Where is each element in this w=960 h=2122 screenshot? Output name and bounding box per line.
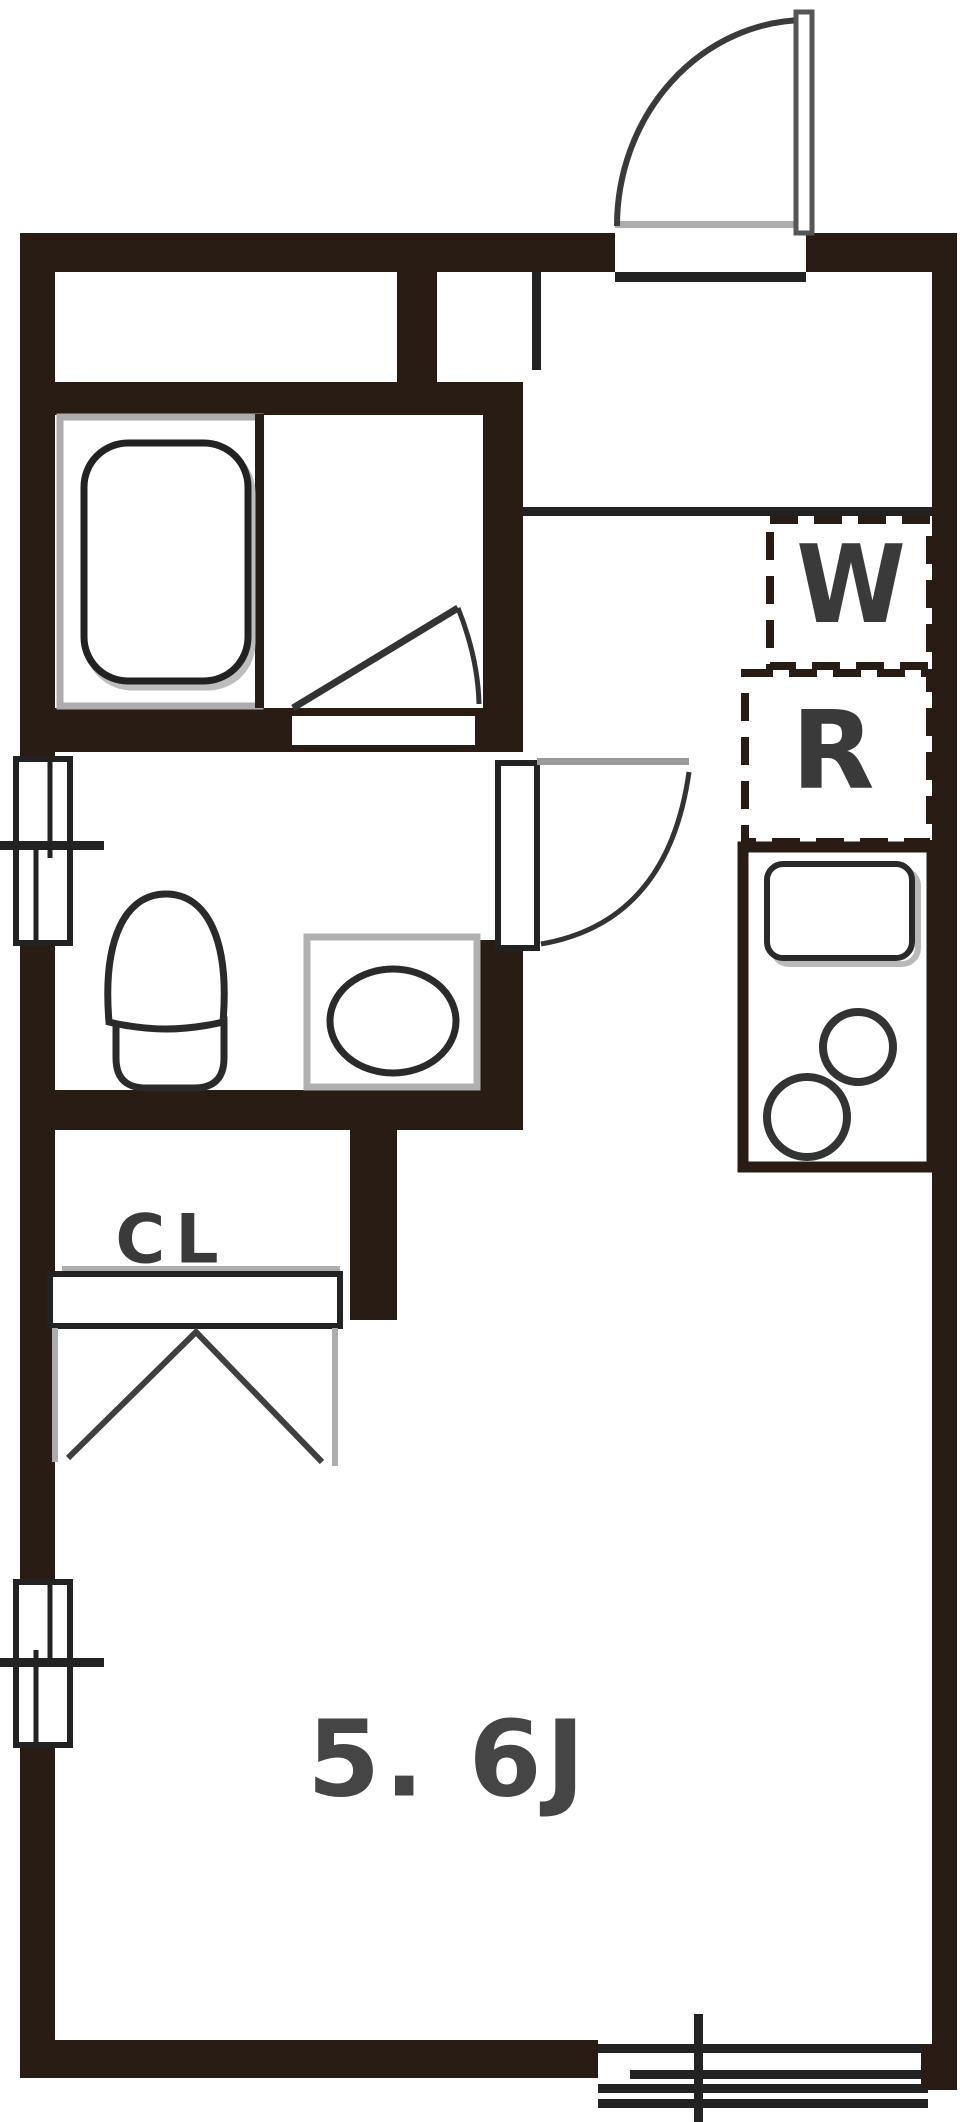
washer-label: W (796, 532, 906, 640)
room-size-label: 5. 6J (307, 1707, 589, 1812)
closet-side-guide-right (332, 1328, 338, 1466)
balcony-door-rail-2 (630, 2070, 928, 2079)
washroom-door-leaf (498, 763, 537, 948)
stove-burner-left (767, 1077, 847, 1157)
entry-door-leaf (796, 12, 812, 233)
stove-burner-right (823, 1012, 893, 1082)
floor-plan: W R CL 5. 6J (0, 0, 960, 2122)
vanity-sink-bowl (330, 969, 456, 1073)
balcony-door-rail-4 (598, 2099, 928, 2108)
entry-door-swing-arc (617, 20, 804, 226)
window-upper-tick (0, 841, 104, 850)
bathroom-inner-divider (255, 414, 264, 708)
balcony-door-rail-3 (598, 2084, 928, 2093)
toilet-bowl (108, 894, 224, 1029)
bathtub (84, 443, 248, 681)
balcony-door-mullion-tick (694, 2014, 703, 2122)
washroom-door-swing-arc (541, 772, 689, 944)
balcony-door-rail-1 (598, 2044, 928, 2053)
closet-side-guide-left (52, 1328, 58, 1462)
kitchen-sink (767, 864, 912, 958)
closet-label: CL (115, 1207, 228, 1275)
washroom-door-lintel-line (537, 758, 689, 765)
bathroom-door-swing-arc (458, 608, 479, 704)
closet-shelf (50, 1274, 340, 1326)
window-upper (16, 759, 70, 943)
bathroom-door-leaf (293, 608, 458, 708)
balcony-door-frame-right (921, 2044, 937, 2090)
refrigerator-label: R (791, 698, 874, 806)
closet-bifold-door (68, 1332, 322, 1462)
window-lower-tick (0, 1658, 104, 1667)
